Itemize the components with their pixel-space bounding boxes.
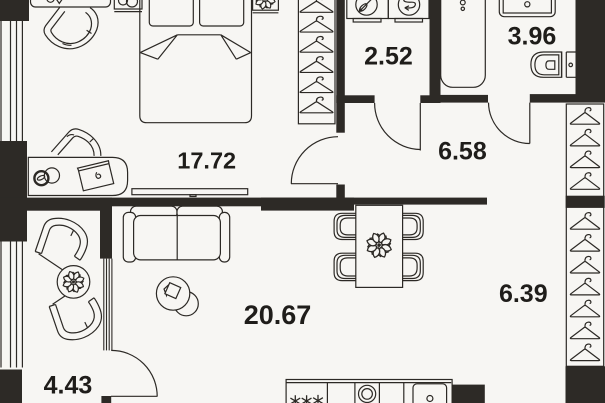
svg-text:3.96: 3.96 — [508, 23, 557, 51]
svg-text:6.58: 6.58 — [438, 138, 487, 166]
svg-text:17.72: 17.72 — [177, 147, 236, 173]
svg-text:20.67: 20.67 — [244, 300, 312, 330]
svg-text:4.43: 4.43 — [44, 372, 93, 400]
svg-text:2.52: 2.52 — [364, 43, 413, 71]
svg-text:6.39: 6.39 — [499, 280, 548, 308]
